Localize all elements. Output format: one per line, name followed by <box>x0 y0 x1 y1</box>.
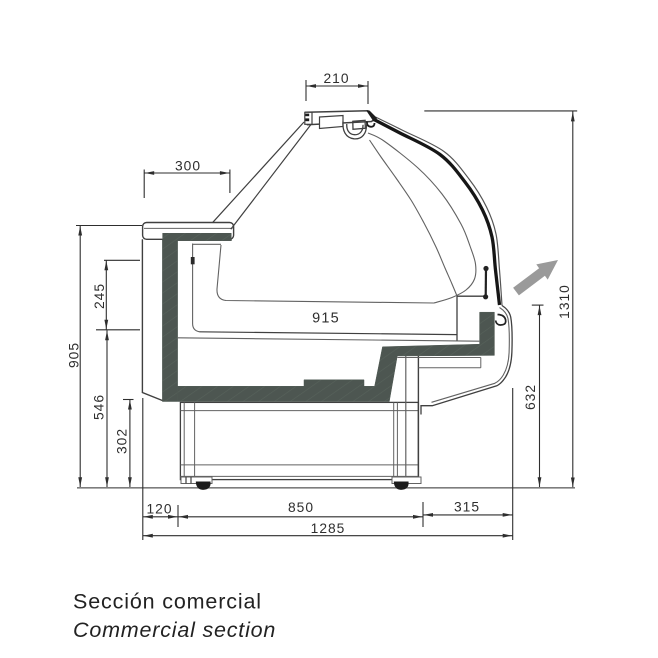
svg-text:210: 210 <box>323 71 349 86</box>
svg-text:315: 315 <box>454 500 480 515</box>
svg-text:850: 850 <box>288 500 314 515</box>
svg-text:245: 245 <box>92 283 107 309</box>
svg-text:Commercial section: Commercial section <box>73 618 276 642</box>
svg-text:1310: 1310 <box>557 284 572 319</box>
svg-text:1285: 1285 <box>311 521 346 536</box>
svg-text:Sección comercial: Sección comercial <box>73 590 262 614</box>
svg-text:632: 632 <box>523 384 538 410</box>
svg-text:120: 120 <box>146 501 172 516</box>
svg-text:546: 546 <box>91 394 106 420</box>
svg-text:300: 300 <box>175 158 201 173</box>
svg-text:905: 905 <box>67 342 82 368</box>
svg-text:302: 302 <box>115 428 130 454</box>
svg-text:915: 915 <box>312 311 340 327</box>
